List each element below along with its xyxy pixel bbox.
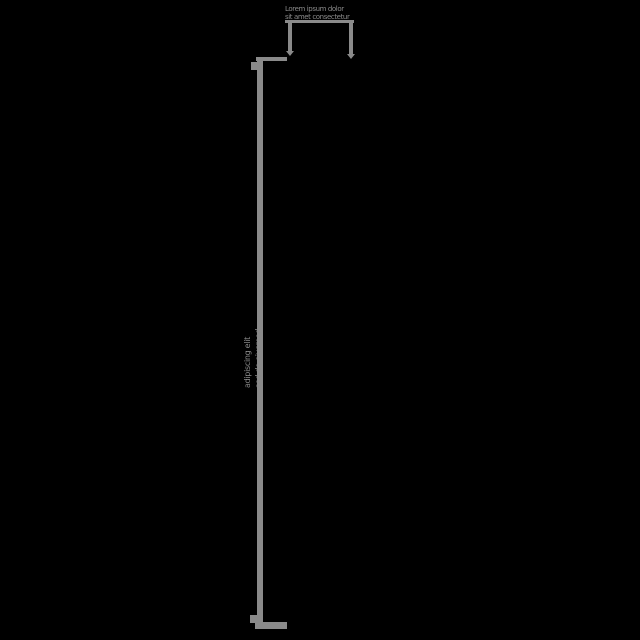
bracket-bottom-arm [255, 622, 287, 629]
right-connector-line [349, 23, 353, 54]
top-node-label-line1: Lorem ipsum dolor [285, 5, 355, 13]
diagram-canvas: Lorem ipsum dolor sit amet consectetur a… [0, 0, 640, 640]
right-connector-arrowhead-icon [347, 54, 355, 59]
bracket-bottom-tick [250, 615, 257, 623]
left-connector-arrowhead-icon [286, 51, 294, 56]
top-node-underline [285, 20, 354, 23]
bracket-label: adipiscing elit sed do eiusmod [242, 288, 266, 388]
left-connector-line [288, 23, 292, 51]
bracket-top-tick [251, 62, 258, 70]
bracket-label-line2: sed do eiusmod [253, 288, 264, 388]
bracket-label-line1: adipiscing elit [242, 288, 253, 388]
